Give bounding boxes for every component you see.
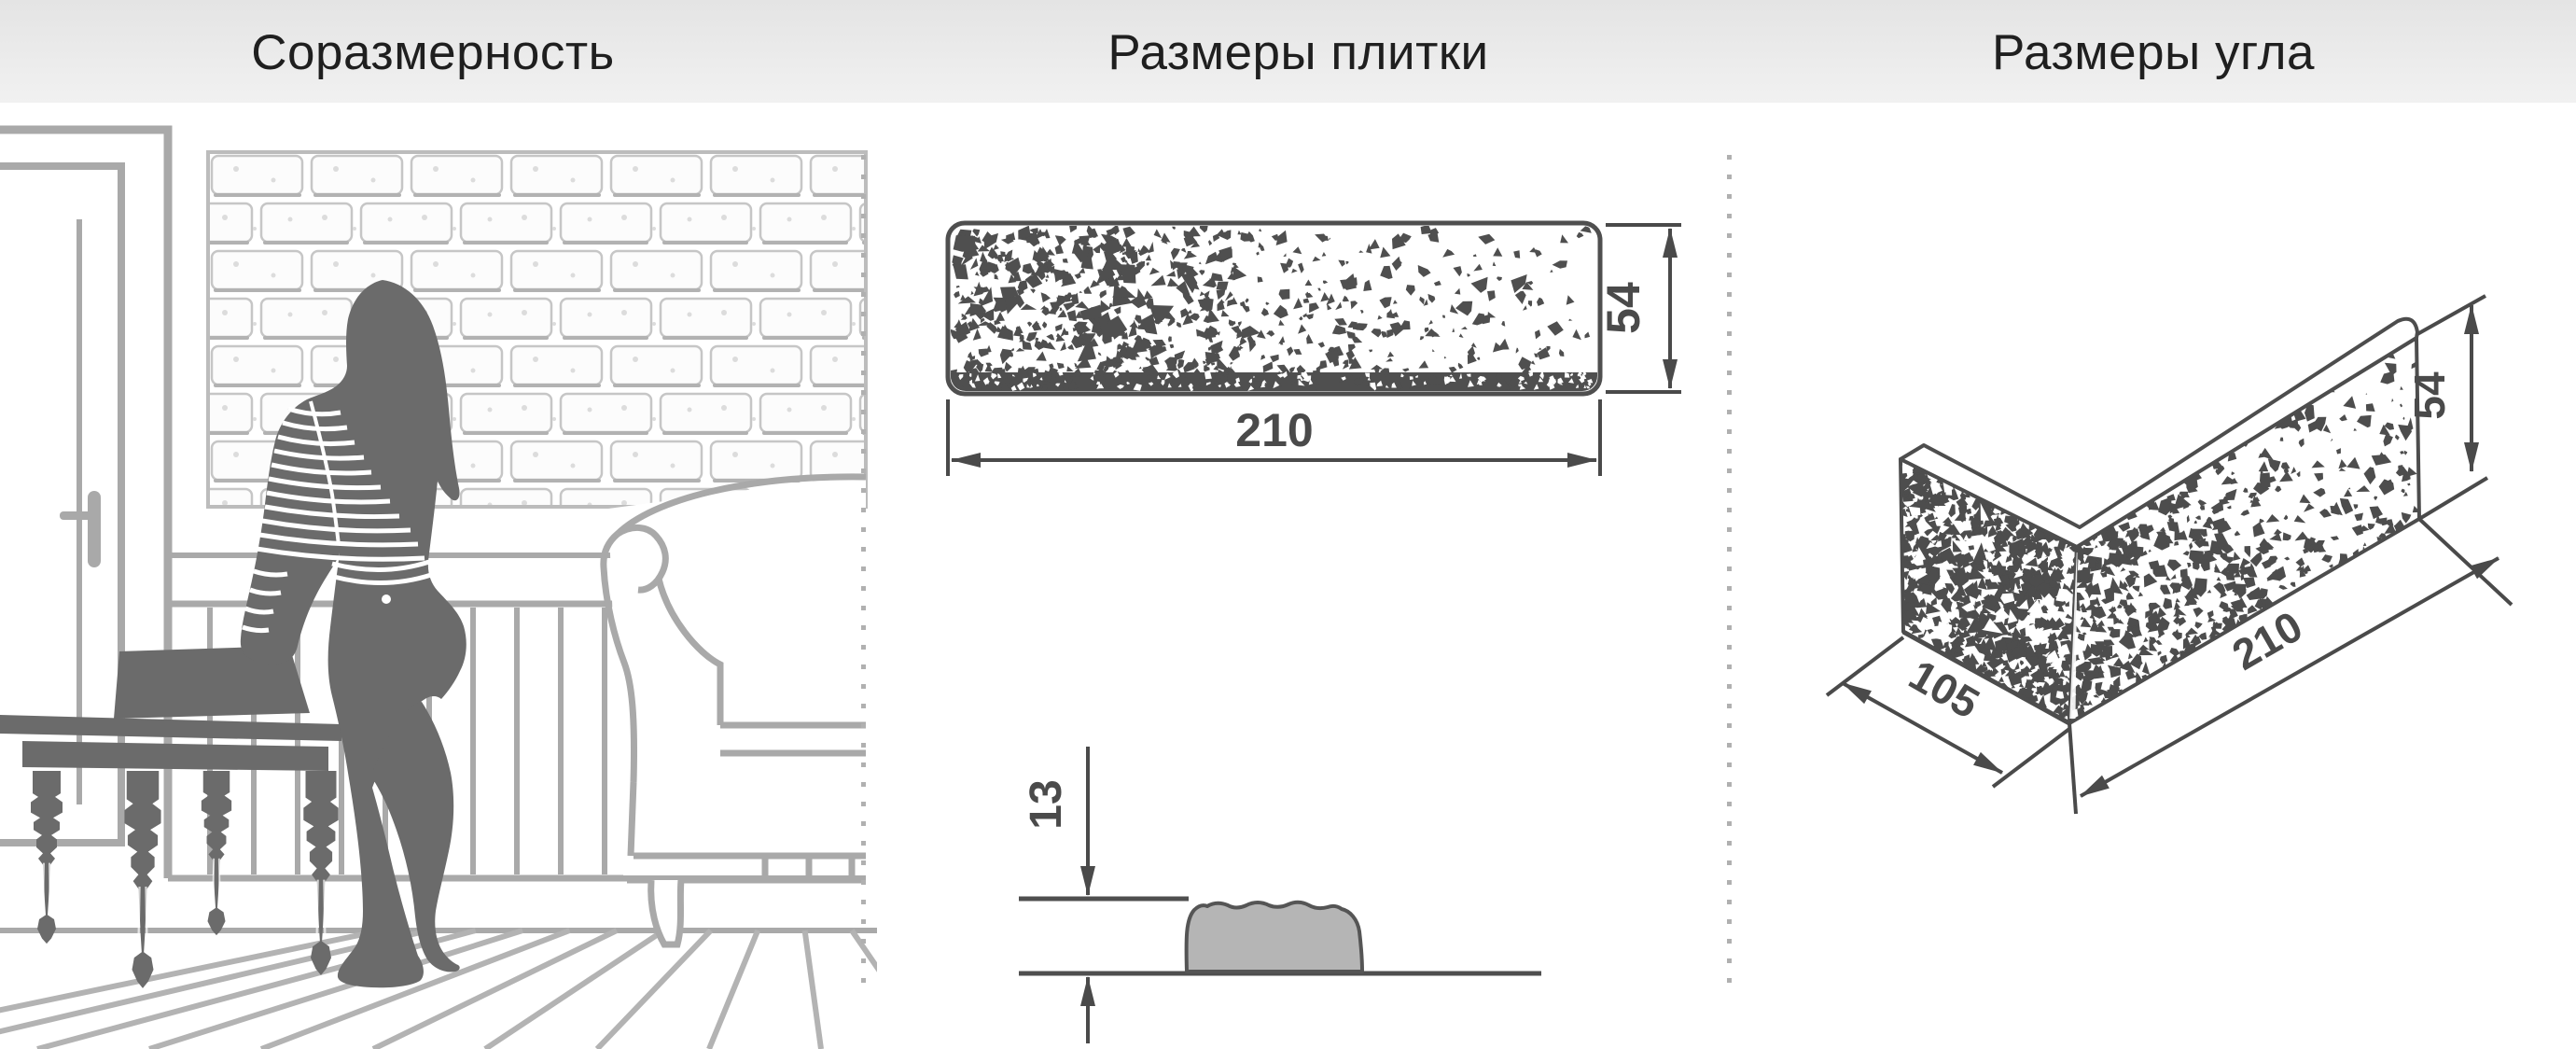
section-title-corner-dimensions: Размеры угла (1731, 21, 2576, 86)
tile-width-label: 210 (1235, 404, 1313, 456)
tile-profile-view (1019, 899, 1541, 973)
tile-front-view (947, 223, 1600, 399)
tile-cross-section (1187, 902, 1362, 972)
page-header: Соразмерность Размеры плитки Размеры угл… (0, 0, 2576, 103)
corner-isometric-view (1896, 319, 2420, 726)
jeans-button (382, 594, 391, 604)
section-title-tile-dimensions: Размеры плитки (866, 21, 1731, 86)
scene-illustration (0, 103, 877, 1049)
tile-drawings: 210 54 13 (877, 103, 1731, 1049)
dimensions-infographic: Соразмерность Размеры плитки Размеры угл… (0, 0, 2576, 1049)
tile-thickness-dimension: 13 (1022, 747, 1088, 1043)
corner-drawing: 105 210 54 (1731, 103, 2576, 1049)
tile-dimensions-panel: 210 54 13 (877, 103, 1731, 1049)
sofa (604, 474, 866, 944)
tile-height-label: 54 (1597, 282, 1650, 334)
tile-height-dimension: 54 (1597, 225, 1681, 392)
section-divider-left (861, 155, 866, 987)
proportion-scene-panel (0, 103, 877, 1049)
corner-height-label: 54 (2405, 371, 2454, 420)
tile-width-dimension: 210 (948, 399, 1600, 476)
tile-thickness-label: 13 (1022, 779, 1071, 829)
section-divider-right (1727, 155, 1732, 987)
corner-dimensions-panel: 105 210 54 (1731, 103, 2576, 1049)
section-title-proportion: Соразмерность (0, 21, 866, 86)
